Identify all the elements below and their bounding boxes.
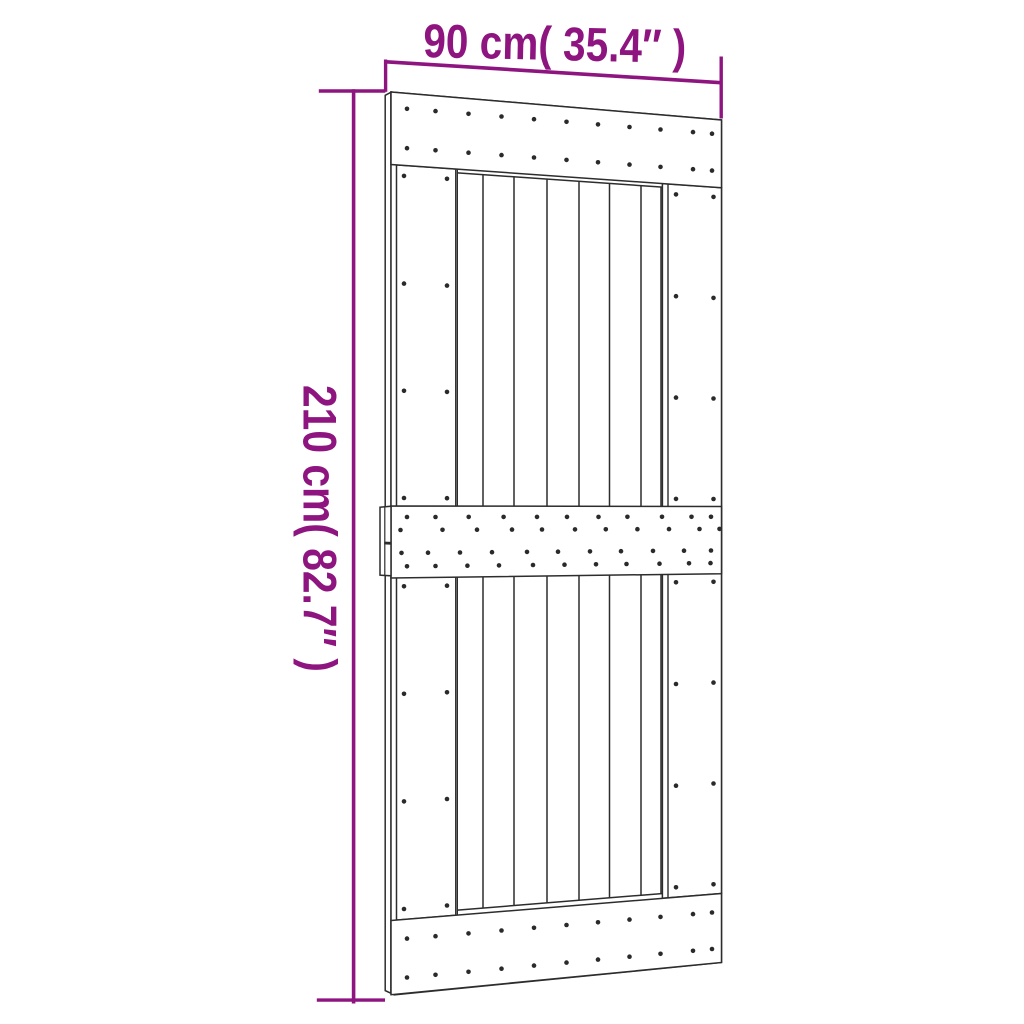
svg-text:210 cm( 82.7″ ): 210 cm( 82.7″ ) bbox=[293, 385, 346, 672]
svg-text:90 cm( 35.4″ ): 90 cm( 35.4″ ) bbox=[423, 15, 687, 74]
